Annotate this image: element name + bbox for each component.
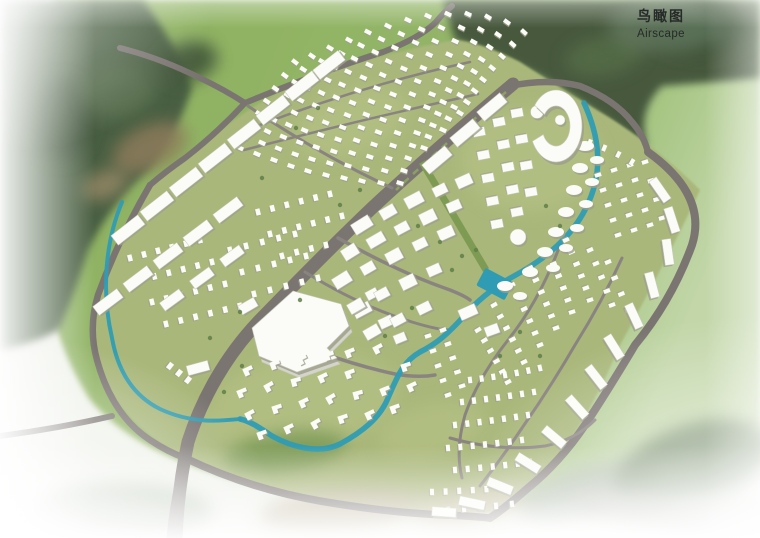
airscape-rendering: 鸟瞰图 Airscape (0, 0, 760, 538)
plan-title-zh: 鸟瞰图 (637, 8, 685, 26)
scene-canvas (0, 0, 760, 538)
plan-title: 鸟瞰图 Airscape (637, 8, 685, 41)
plan-title-en: Airscape (637, 27, 685, 41)
